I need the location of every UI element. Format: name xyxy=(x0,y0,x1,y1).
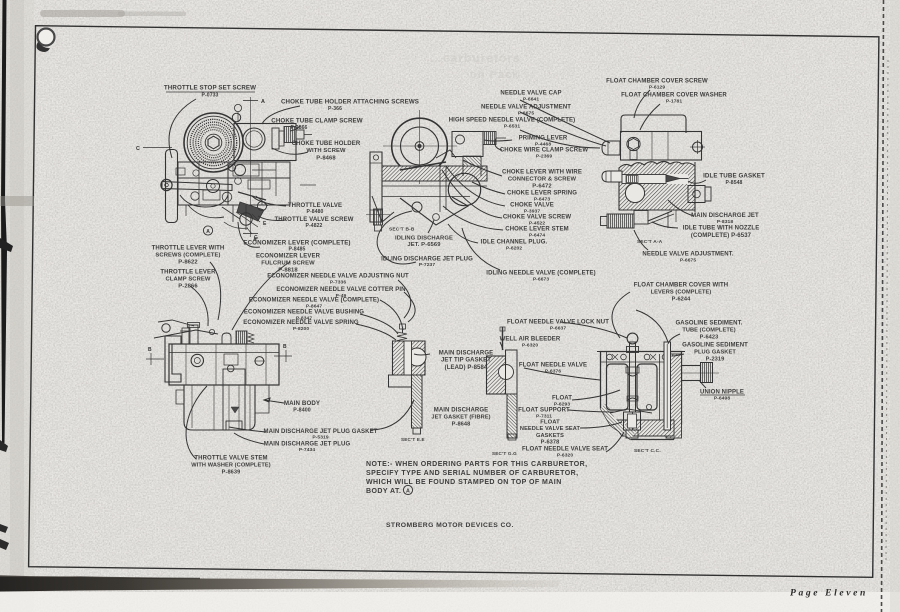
svg-text:THROTTLE VALVE: THROTTLE VALVE xyxy=(288,203,342,209)
svg-text:(LEAD) P-8584: (LEAD) P-8584 xyxy=(445,365,488,371)
svg-text:P-366: P-366 xyxy=(328,106,342,112)
svg-text:P-2866: P-2866 xyxy=(291,125,308,131)
svg-text:P-6675: P-6675 xyxy=(518,111,535,117)
svg-text:IDLE TUBE GASKET: IDLE TUBE GASKET xyxy=(703,173,765,180)
svg-text:B: B xyxy=(283,344,287,350)
svg-text:ECONOMIZER NEEDLE VALVE BUSHIN: ECONOMIZER NEEDLE VALVE BUSHING xyxy=(244,310,364,316)
svg-text:FLOAT NEEDLE VALVE: FLOAT NEEDLE VALVE xyxy=(519,363,587,369)
svg-text:P-6376: P-6376 xyxy=(545,369,562,375)
svg-text:NEEDLE VALVE CAP: NEEDLE VALVE CAP xyxy=(500,91,561,97)
svg-text:P-6498: P-6498 xyxy=(714,396,731,402)
svg-text:P-6320: P-6320 xyxy=(522,343,539,349)
svg-text:GASKETS: GASKETS xyxy=(536,433,564,439)
svg-text:NEEDLE VALVE ADJUSTMENT.: NEEDLE VALVE ADJUSTMENT. xyxy=(642,252,733,258)
svg-text:P-8648: P-8648 xyxy=(452,422,471,428)
svg-text:P-2369: P-2369 xyxy=(536,154,553,160)
svg-text:P-8468: P-8468 xyxy=(316,156,336,162)
svg-text:P-6202: P-6202 xyxy=(506,246,523,252)
svg-text:P-1781: P-1781 xyxy=(666,99,683,105)
svg-text:IDLING DISCHARGE JET PLUG: IDLING DISCHARGE JET PLUG xyxy=(381,257,473,263)
svg-text:FLOAT NEEDLE VALVE LOCK NUT: FLOAT NEEDLE VALVE LOCK NUT xyxy=(507,320,609,326)
svg-text:JET. P-6569: JET. P-6569 xyxy=(407,242,441,248)
svg-text:FLOAT CHAMBER COVER SCREW: FLOAT CHAMBER COVER SCREW xyxy=(606,79,708,85)
svg-text:FLOAT: FLOAT xyxy=(552,396,572,402)
svg-text:P-6244: P-6244 xyxy=(672,297,692,303)
svg-text:CHOKE LEVER SPRING: CHOKE LEVER SPRING xyxy=(507,191,577,197)
svg-text:FLOAT NEEDLE VALVE SEAT: FLOAT NEEDLE VALVE SEAT xyxy=(522,447,608,453)
svg-text:P-7434: P-7434 xyxy=(299,447,316,453)
svg-text:P-2319: P-2319 xyxy=(706,357,725,363)
svg-text:IDLING DISCHARGE: IDLING DISCHARGE xyxy=(395,235,453,241)
svg-text:WITH SCREW: WITH SCREW xyxy=(306,148,346,154)
svg-text:SEC'T G.G: SEC'T G.G xyxy=(492,451,517,456)
svg-text:P-0733: P-0733 xyxy=(202,93,219,99)
svg-text:P-6675: P-6675 xyxy=(680,258,697,264)
svg-text:FLOAT CHAMBER COVER WASHER: FLOAT CHAMBER COVER WASHER xyxy=(621,93,727,99)
svg-text:P-8622: P-8622 xyxy=(178,260,198,266)
svg-text:MAIN DISCHARGE JET PLUG GASKET: MAIN DISCHARGE JET PLUG GASKET xyxy=(264,429,378,435)
svg-text:P-6472: P-6472 xyxy=(532,183,552,189)
svg-text:(COMPLETE) P-6537: (COMPLETE) P-6537 xyxy=(691,233,752,239)
svg-text:IDLE TUBE WITH NOZZLE: IDLE TUBE WITH NOZZLE xyxy=(683,226,760,232)
svg-text:SPECIFY TYPE AND SERIAL NUMBE: SPECIFY TYPE AND SERIAL NUMBER OF CARBUR… xyxy=(366,470,579,477)
svg-text:Page Eleven: Page Eleven xyxy=(790,588,868,599)
svg-text:NOTE:- WHEN ORDERING PARTS FO: NOTE:- WHEN ORDERING PARTS FOR THIS CARB… xyxy=(366,461,588,468)
svg-text:PLUG GASKET: PLUG GASKET xyxy=(694,349,736,355)
svg-text:ECONOMIZER NEEDLE VALVE (COMPL: ECONOMIZER NEEDLE VALVE (COMPLETE) xyxy=(249,298,379,304)
svg-text:MAIN BODY: MAIN BODY xyxy=(284,400,321,407)
svg-text:CHOKE LEVER STEM: CHOKE LEVER STEM xyxy=(505,227,568,233)
svg-text:GASOLINE SEDIMENT.: GASOLINE SEDIMENT. xyxy=(676,321,743,327)
svg-text:IDLING NEEDLE VALVE (COMPLETE): IDLING NEEDLE VALVE (COMPLETE) xyxy=(486,271,595,277)
svg-text:STROMBERG MOTOR DEVICES CO.: STROMBERG MOTOR DEVICES CO. xyxy=(386,522,514,529)
svg-text:MAIN DISCHARGE JET PLUG: MAIN DISCHARGE JET PLUG xyxy=(264,442,351,448)
svg-text:HIGH SPEED NEEDLE VALVE (COMPL: HIGH SPEED NEEDLE VALVE (COMPLETE) xyxy=(449,118,576,124)
svg-text:P-8639: P-8639 xyxy=(222,470,241,476)
svg-text:FLOAT SUPPORT: FLOAT SUPPORT xyxy=(518,408,570,414)
svg-text:P-6531: P-6531 xyxy=(504,124,521,130)
svg-text:MAIN DISCHARGE: MAIN DISCHARGE xyxy=(439,351,494,357)
svg-text:P-7237: P-7237 xyxy=(419,262,436,268)
svg-text:FLOAT: FLOAT xyxy=(540,419,560,425)
svg-text:WHICH WILL BE FOUND STAMPED ON: WHICH WILL BE FOUND STAMPED ON TOP OF MA… xyxy=(366,479,562,486)
svg-text:WITH WASHER (COMPLETE): WITH WASHER (COMPLETE) xyxy=(191,462,270,468)
svg-text:WELL AIR BLEEDER: WELL AIR BLEEDER xyxy=(500,337,561,343)
svg-text:CONNECTOR & SCREW: CONNECTOR & SCREW xyxy=(508,176,577,182)
svg-text:THROTTLE STOP SET SCREW: THROTTLE STOP SET SCREW xyxy=(164,85,256,92)
svg-text:PRIMING LEVER: PRIMING LEVER xyxy=(519,136,568,142)
svg-text:THROTTLE LEVER WITH: THROTTLE LEVER WITH xyxy=(152,246,225,252)
svg-text:A: A xyxy=(406,489,410,495)
svg-text:P-6637: P-6637 xyxy=(550,326,567,332)
svg-text:P-4822: P-4822 xyxy=(306,223,323,229)
svg-text:CHOKE VALVE SCREW: CHOKE VALVE SCREW xyxy=(503,215,572,221)
svg-text:P-6378: P-6378 xyxy=(541,440,560,446)
svg-text:P-2866: P-2866 xyxy=(178,284,198,290)
svg-text:CHOKE VALVE: CHOKE VALVE xyxy=(510,203,554,209)
svg-text:JET GASKET (FIBRE): JET GASKET (FIBRE) xyxy=(431,414,490,420)
svg-text:MAIN DISCHARGE JET: MAIN DISCHARGE JET xyxy=(691,213,759,219)
svg-text:P-6423: P-6423 xyxy=(700,335,719,341)
svg-text:P-7336: P-7336 xyxy=(330,280,347,286)
svg-text:CHOKE TUBE HOLDER ATTACHING SC: CHOKE TUBE HOLDER ATTACHING SCREWS xyxy=(281,99,419,106)
svg-text:ECONOMIZER NEEDLE VALVE COTTER: ECONOMIZER NEEDLE VALVE COTTER PIN xyxy=(276,287,405,293)
svg-text:P-8400: P-8400 xyxy=(293,408,311,414)
svg-text:CHOKE TUBE CLAMP SCREW: CHOKE TUBE CLAMP SCREW xyxy=(271,118,363,125)
svg-text:IDLE CHANNEL PLUG.: IDLE CHANNEL PLUG. xyxy=(481,240,548,246)
svg-text:P-6129: P-6129 xyxy=(649,85,666,91)
svg-text:P-6673: P-6673 xyxy=(533,277,550,283)
svg-text:CHOKE LEVER WITH WIRE: CHOKE LEVER WITH WIRE xyxy=(502,170,582,176)
svg-text:LEVERS (COMPLETE): LEVERS (COMPLETE) xyxy=(651,289,712,295)
svg-text:P-6320: P-6320 xyxy=(557,453,574,459)
svg-text:B: B xyxy=(148,347,152,353)
svg-text:P-8200: P-8200 xyxy=(293,326,310,332)
svg-text:SCREWS (COMPLETE): SCREWS (COMPLETE) xyxy=(155,253,220,259)
svg-text:on Pack: on Pack xyxy=(470,69,519,81)
svg-text:BODY AT.: BODY AT. xyxy=(366,488,401,495)
svg-text:THROTTLE VALVE STEM: THROTTLE VALVE STEM xyxy=(194,456,267,462)
svg-text:TUBE (COMPLETE): TUBE (COMPLETE) xyxy=(682,327,735,333)
svg-text:P-8548: P-8548 xyxy=(726,180,743,186)
svg-text:ECONOMIZER NEEDLE VALVE SPRING: ECONOMIZER NEEDLE VALVE SPRING xyxy=(243,320,359,326)
svg-text:P-8318: P-8318 xyxy=(717,219,734,225)
svg-text:ECONOMIZER NEEDLE VALVE ADJUST: ECONOMIZER NEEDLE VALVE ADJUSTING NUT xyxy=(267,274,409,280)
svg-text:CHOKE WIRE CLAMP SCREW: CHOKE WIRE CLAMP SCREW xyxy=(500,148,589,154)
svg-text:CHOKE TUBE HOLDER: CHOKE TUBE HOLDER xyxy=(292,141,361,147)
svg-text:THROTTLE VALVE SCREW: THROTTLE VALVE SCREW xyxy=(275,217,354,223)
svg-text:SEC'T C.C.: SEC'T C.C. xyxy=(634,448,661,454)
svg-text:JET TIP GASKET: JET TIP GASKET xyxy=(441,358,491,364)
svg-text:SEC'T E.E: SEC'T E.E xyxy=(401,437,425,442)
svg-text:P-6474: P-6474 xyxy=(529,233,546,239)
svg-text:GASOLINE SEDIMENT: GASOLINE SEDIMENT xyxy=(682,343,748,349)
svg-text:NEEDLE VALVE SEAT: NEEDLE VALVE SEAT xyxy=(520,426,581,432)
svg-text:P-6641: P-6641 xyxy=(523,97,540,103)
svg-text:C: C xyxy=(136,146,140,152)
svg-text:A: A xyxy=(206,229,210,235)
svg-text:P-8480: P-8480 xyxy=(307,209,324,215)
svg-text:NEEDLE VALVE ADJUSTMENT: NEEDLE VALVE ADJUSTMENT xyxy=(481,105,571,111)
svg-text:FULCRUM SCREW: FULCRUM SCREW xyxy=(261,261,315,267)
svg-text:THROTTLE LEVER: THROTTLE LEVER xyxy=(160,270,216,276)
svg-text:A: A xyxy=(261,99,265,105)
svg-text:…carburetors: …carburetors xyxy=(430,51,521,65)
svg-text:UNION NIPPLE: UNION NIPPLE xyxy=(700,390,744,396)
svg-text:ECONOMIZER LEVER (COMPLETE): ECONOMIZER LEVER (COMPLETE) xyxy=(243,240,350,247)
svg-text:ECONOMIZER LEVER: ECONOMIZER LEVER xyxy=(256,254,321,260)
svg-text:P-5319: P-5319 xyxy=(312,435,329,441)
svg-text:P-8485: P-8485 xyxy=(289,247,306,253)
svg-text:MAIN DISCHARGE: MAIN DISCHARGE xyxy=(434,408,489,414)
svg-text:FLOAT CHAMBER COVER WITH: FLOAT CHAMBER COVER WITH xyxy=(634,283,729,289)
svg-text:CLAMP SCREW: CLAMP SCREW xyxy=(165,277,210,283)
svg-text:SEC'T B-B: SEC'T B-B xyxy=(389,227,415,233)
